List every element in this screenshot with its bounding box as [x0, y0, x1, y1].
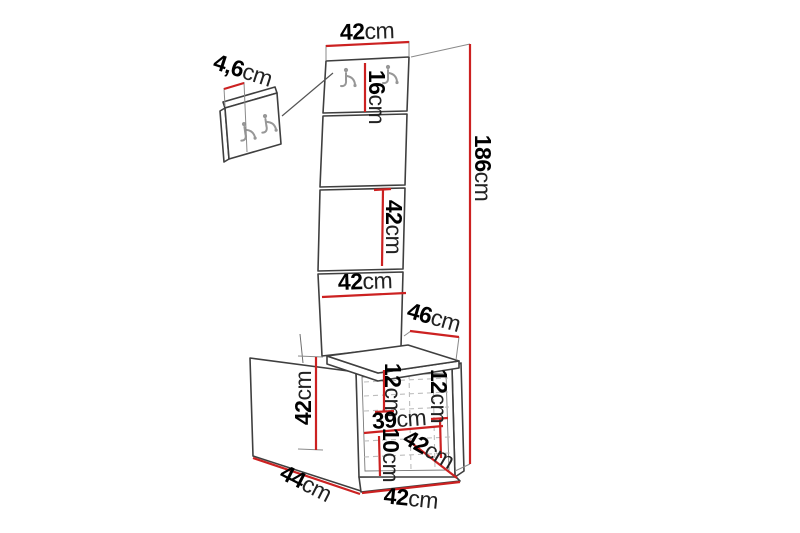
furniture-dimension-diagram: 42cm 16cm 4,6cm 42cm 186cm 42cm 46cm 42c… [0, 0, 800, 533]
panel-section-1 [320, 114, 407, 187]
dim-line-hook-plate-depth [224, 83, 244, 89]
dim-hook-plate-depth-label: 4,6cm [210, 48, 275, 91]
dim-bench-height-label: 42cm [290, 371, 316, 425]
dim-panel-mid-width-label: 42cm [337, 267, 392, 295]
dim-plinth-height-label: 10cm [378, 428, 404, 482]
dim-base-width-label: 42cm [383, 482, 440, 514]
dim-total-height-label: 186cm [470, 135, 496, 202]
panel-floor-support-line [300, 334, 303, 363]
dim-drawer-right-height-label: 12cm [426, 369, 452, 423]
dim-hook-panel-height-label: 16cm [364, 70, 390, 124]
dim-panel-top-width-label: 42cm [339, 17, 394, 45]
dim-panel-section-height-label: 42cm [381, 200, 407, 254]
hook-plate-detail [220, 73, 333, 162]
diagram-canvas: 42cm 16cm 4,6cm 42cm 186cm 42cm 46cm 42c… [0, 0, 800, 533]
